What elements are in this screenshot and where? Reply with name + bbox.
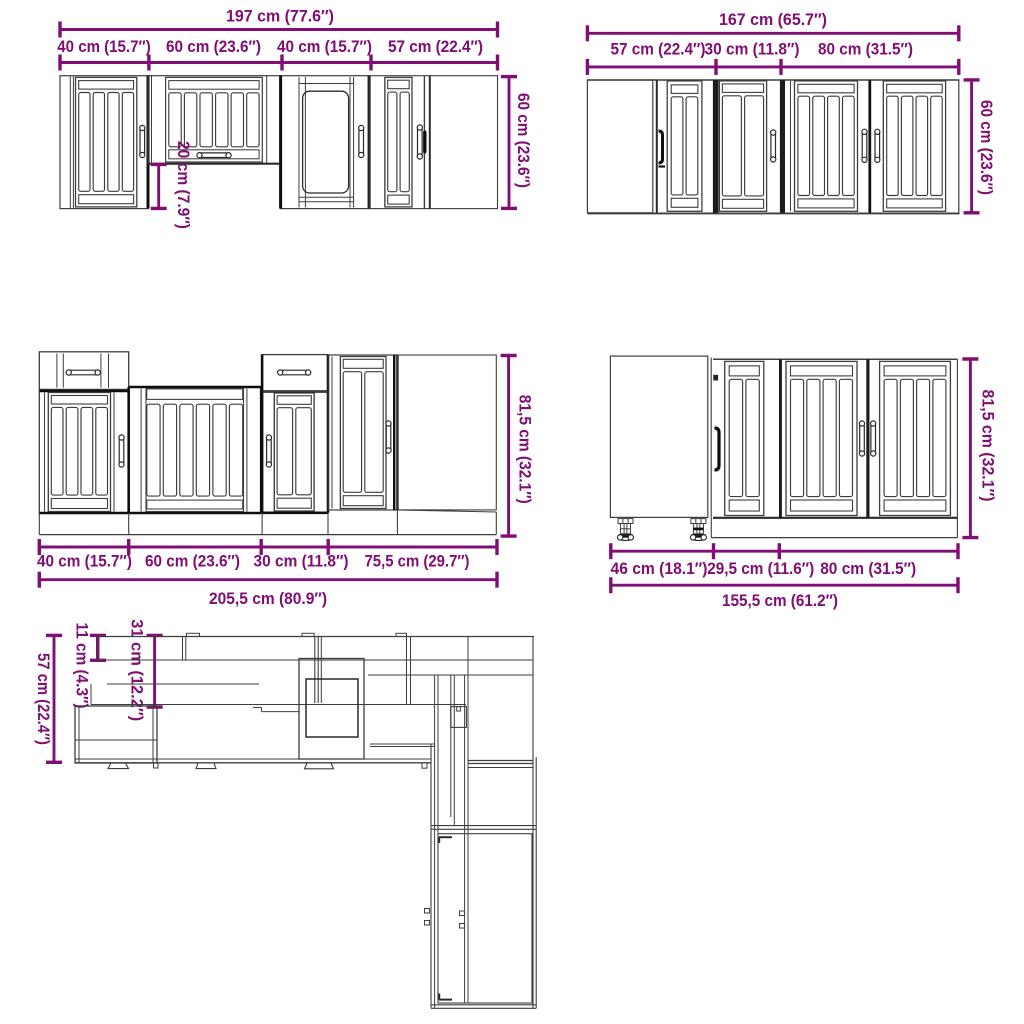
svg-text:167 cm (65.7″): 167 cm (65.7″): [719, 10, 827, 29]
svg-text:60 cm (23.6″): 60 cm (23.6″): [166, 37, 261, 56]
svg-text:197 cm (77.6″): 197 cm (77.6″): [226, 7, 334, 26]
svg-text:155,5 cm (61.2″): 155,5 cm (61.2″): [722, 591, 838, 610]
svg-text:40 cm (15.7″): 40 cm (15.7″): [57, 37, 151, 56]
svg-text:81,5 cm (32.1″): 81,5 cm (32.1″): [516, 395, 535, 504]
svg-text:80 cm (31.5″): 80 cm (31.5″): [820, 559, 916, 578]
svg-text:40 cm (15.7″): 40 cm (15.7″): [277, 37, 372, 56]
svg-text:30 cm (11.8″): 30 cm (11.8″): [705, 40, 800, 59]
svg-text:46 cm (18.1″): 46 cm (18.1″): [611, 559, 708, 578]
svg-text:11 cm (4.3″): 11 cm (4.3″): [73, 623, 92, 709]
svg-text:57 cm (22.4″): 57 cm (22.4″): [34, 653, 53, 745]
svg-text:57 cm (22.4″): 57 cm (22.4″): [611, 40, 706, 59]
svg-text:40 cm (15.7″): 40 cm (15.7″): [37, 552, 132, 571]
svg-text:30 cm (11.8″): 30 cm (11.8″): [254, 552, 349, 571]
svg-text:57 cm (22.4″): 57 cm (22.4″): [388, 37, 483, 56]
svg-text:80 cm (31.5″): 80 cm (31.5″): [818, 40, 913, 59]
svg-text:29,5 cm (11.6″): 29,5 cm (11.6″): [707, 559, 814, 578]
svg-text:60 cm (23.6″): 60 cm (23.6″): [145, 552, 240, 571]
svg-text:75,5 cm (29.7″): 75,5 cm (29.7″): [365, 552, 470, 571]
svg-text:81,5 cm (32.1″): 81,5 cm (32.1″): [979, 390, 998, 502]
svg-text:60 cm (23.6″): 60 cm (23.6″): [514, 93, 533, 188]
svg-text:60 cm (23.6″): 60 cm (23.6″): [977, 100, 996, 195]
svg-text:205,5 cm (80.9″): 205,5 cm (80.9″): [209, 589, 327, 608]
svg-text:20 cm (7.9″): 20 cm (7.9″): [174, 141, 193, 229]
